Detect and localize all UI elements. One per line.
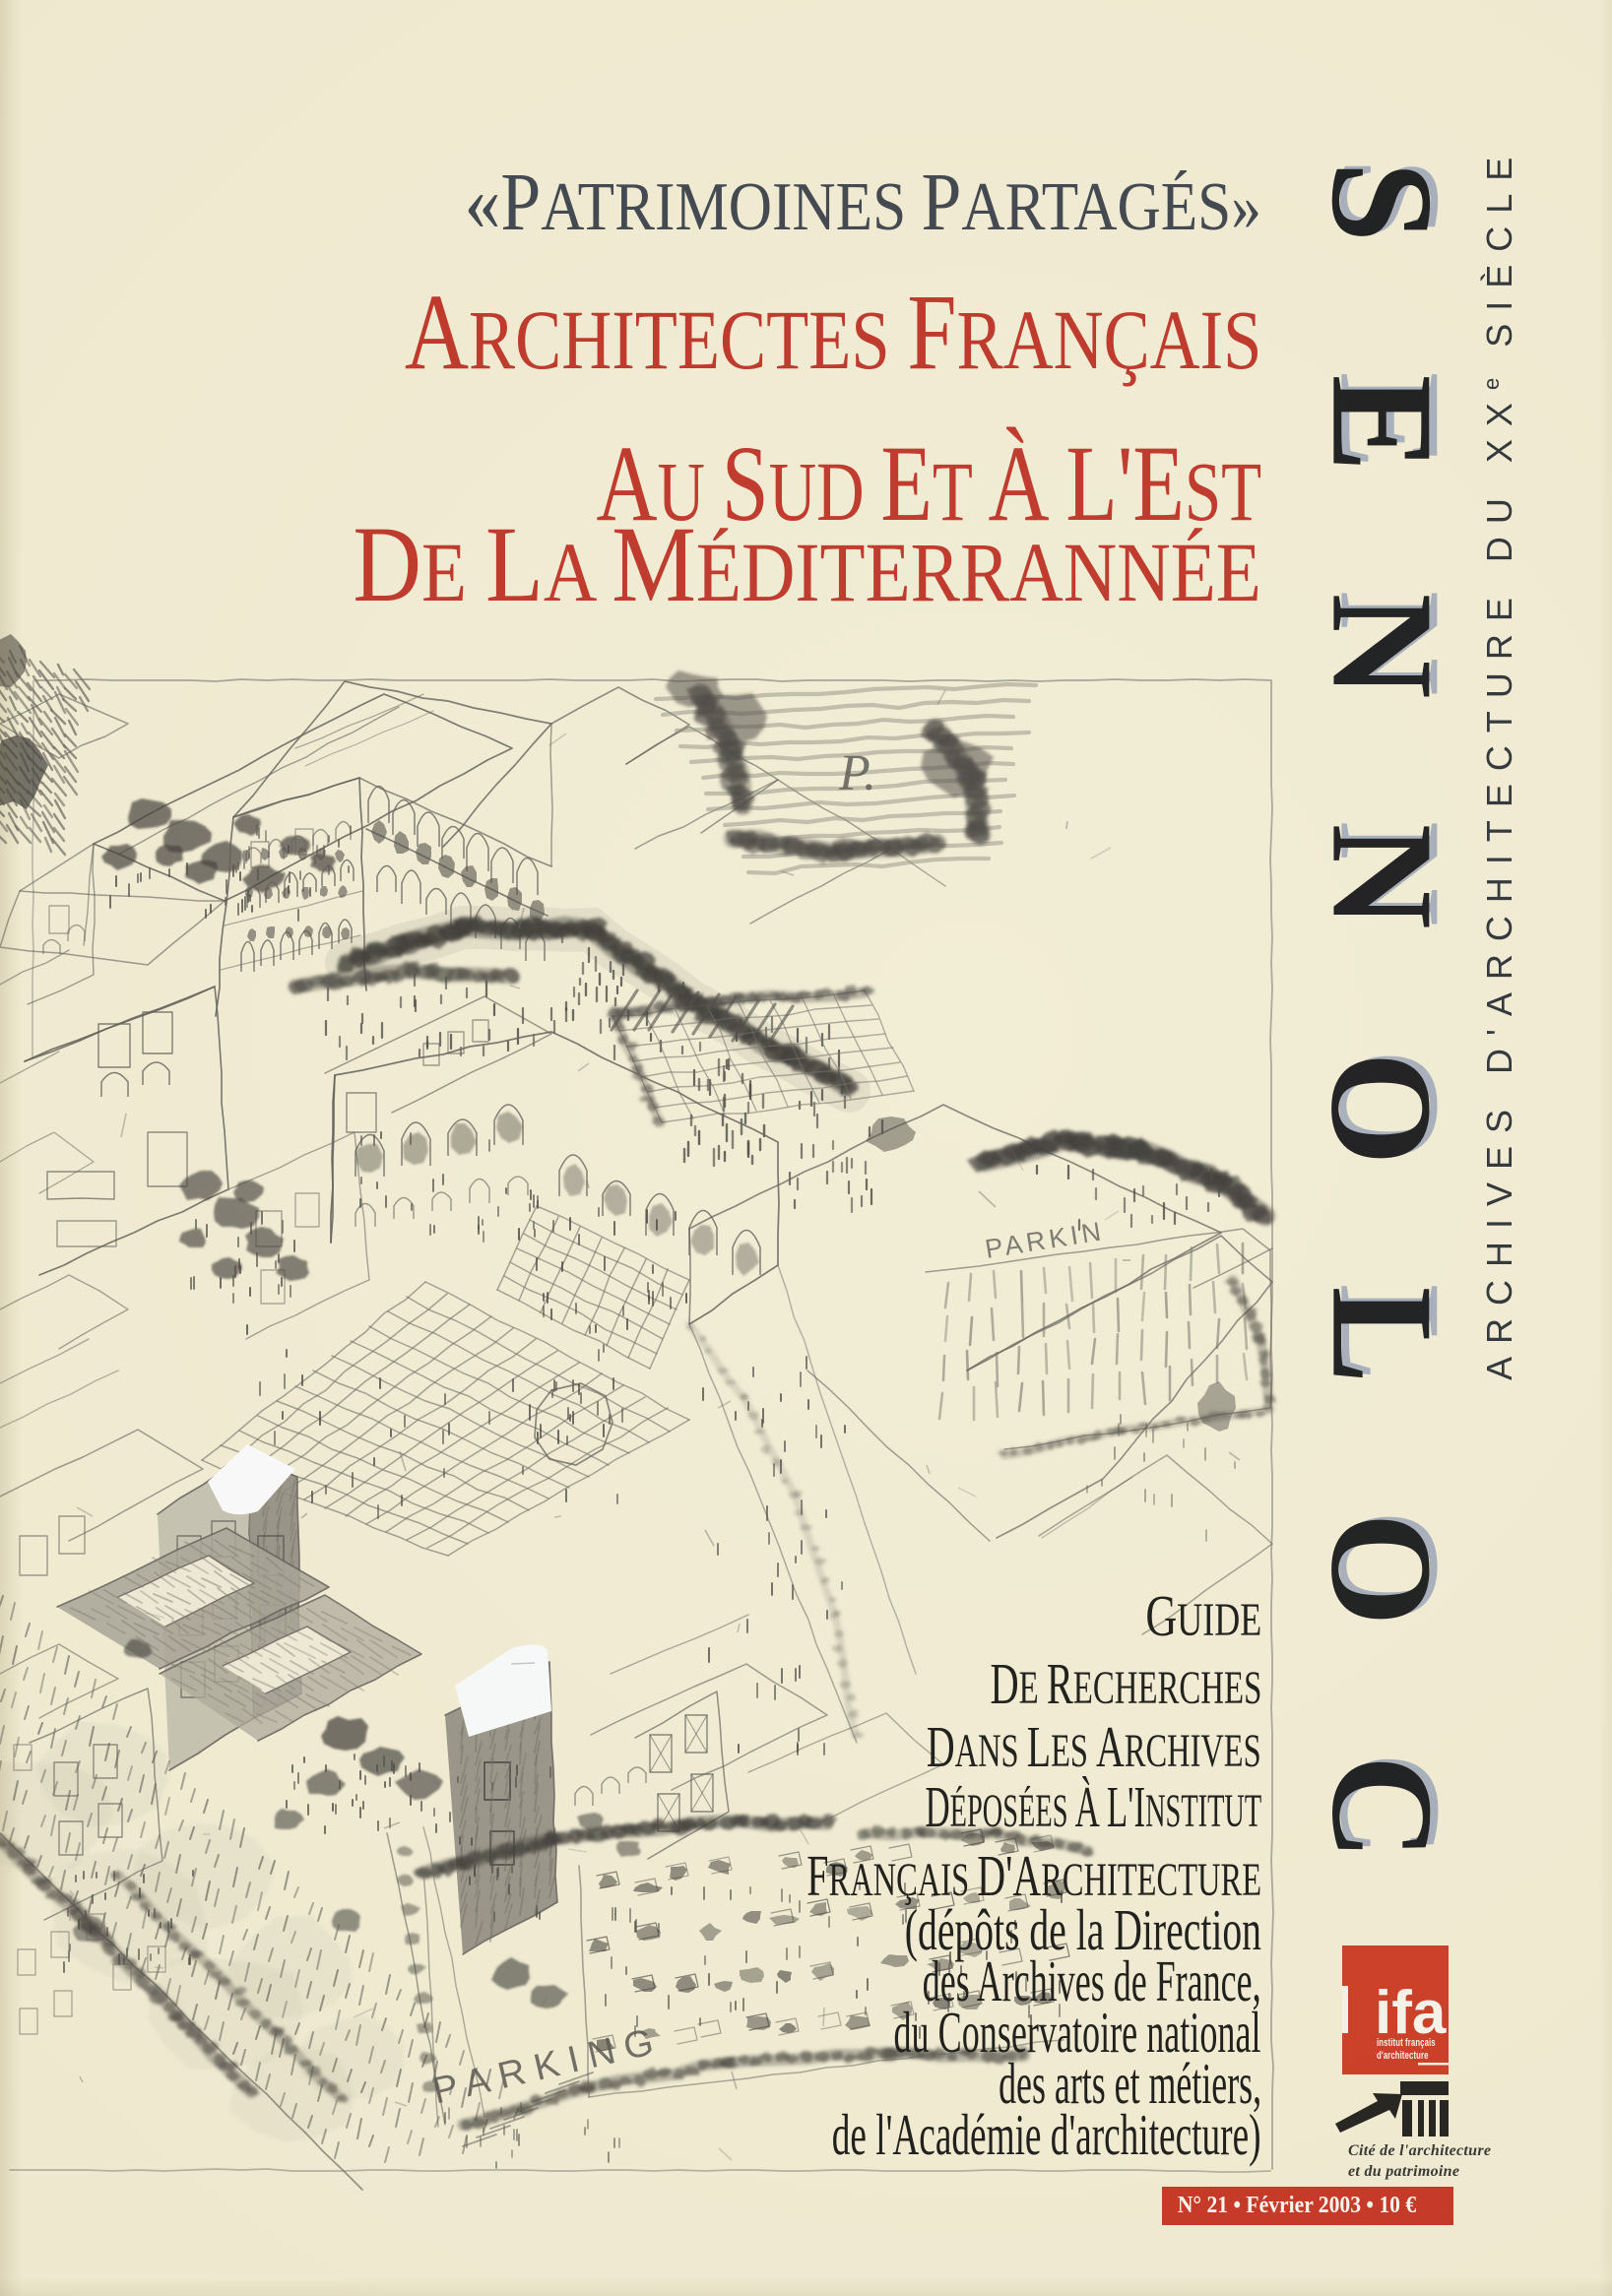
- svg-text:P.: P.: [838, 745, 876, 801]
